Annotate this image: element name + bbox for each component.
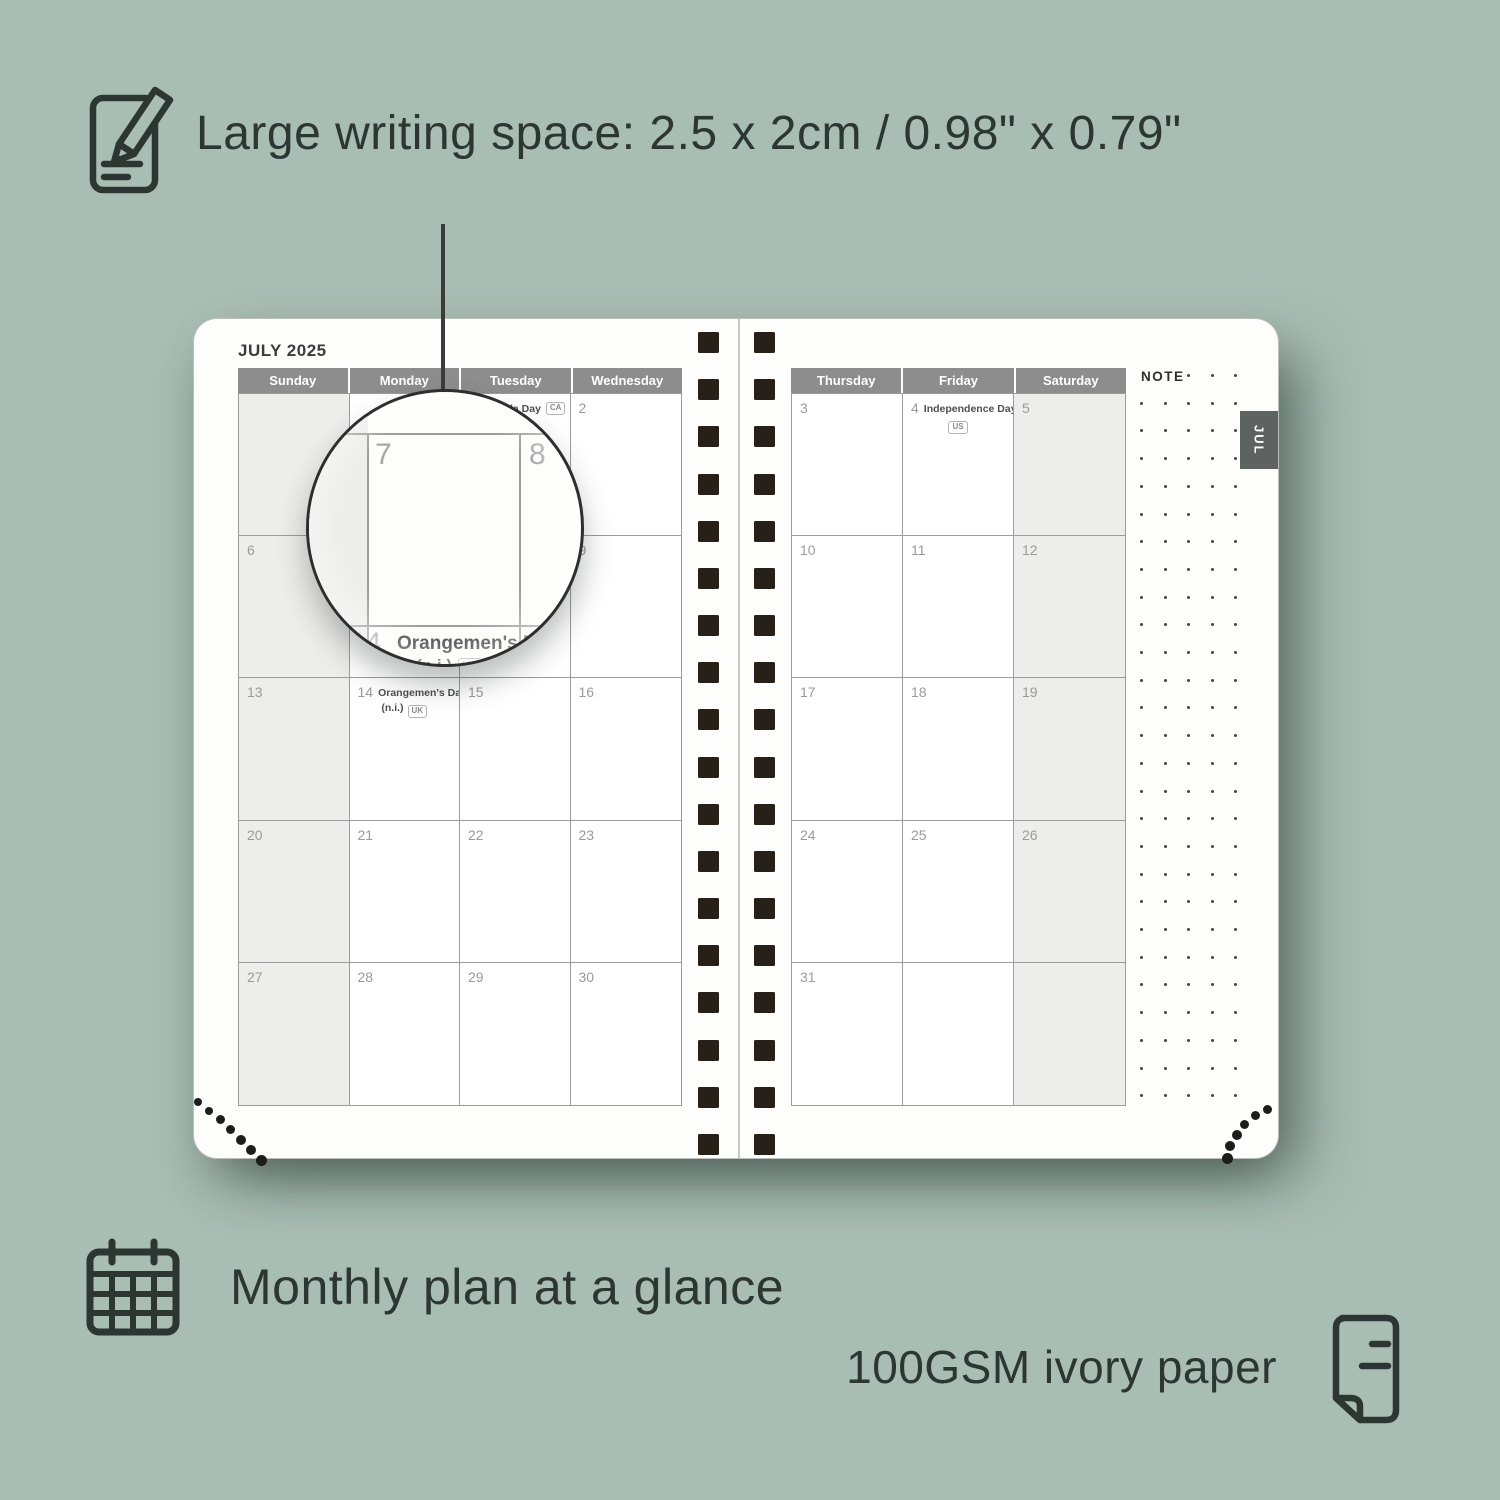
spiral-square bbox=[754, 662, 775, 683]
note-dot bbox=[1187, 457, 1190, 460]
spiral-square bbox=[698, 757, 719, 778]
calendar-cell: 12 bbox=[1014, 536, 1125, 678]
note-dot bbox=[1164, 402, 1167, 405]
note-dot bbox=[1140, 429, 1143, 432]
calendar-cell: 3 bbox=[792, 394, 903, 536]
date-number: 10 bbox=[800, 541, 816, 559]
note-dot bbox=[1164, 568, 1167, 571]
calendar-cell: 31 bbox=[792, 963, 903, 1105]
note-dot bbox=[1211, 1011, 1214, 1014]
note-dot bbox=[1187, 568, 1190, 571]
date-number: 6 bbox=[247, 541, 255, 559]
spiral-square bbox=[754, 568, 775, 589]
note-dot bbox=[1140, 596, 1143, 599]
note-dot bbox=[1211, 817, 1214, 820]
note-dot bbox=[1211, 568, 1214, 571]
spiral-square bbox=[754, 1134, 775, 1155]
note-dot bbox=[1164, 873, 1167, 876]
note-dot bbox=[1140, 513, 1143, 516]
note-dot bbox=[1187, 679, 1190, 682]
note-dot bbox=[1211, 485, 1214, 488]
note-dot bbox=[1187, 540, 1190, 543]
corner-dot bbox=[216, 1115, 225, 1124]
note-dot bbox=[1187, 900, 1190, 903]
day-header: Tuesday bbox=[459, 368, 571, 393]
day-header: Friday bbox=[901, 368, 1013, 393]
note-dot bbox=[1234, 1039, 1237, 1042]
date-number: 25 bbox=[911, 826, 927, 844]
right-page-calendar: ThursdayFridaySaturday 34Independence Da… bbox=[791, 368, 1126, 1106]
magnified-day-7: 7 bbox=[375, 438, 392, 472]
date-number: 22 bbox=[468, 826, 484, 844]
note-dot bbox=[1234, 762, 1237, 765]
note-dot bbox=[1140, 457, 1143, 460]
spiral-square bbox=[698, 1040, 719, 1061]
note-dot bbox=[1187, 1094, 1190, 1097]
spiral-binding-left bbox=[698, 332, 719, 1155]
note-dot bbox=[1164, 457, 1167, 460]
calendar-cell: 16 bbox=[571, 678, 682, 820]
calendar-cell: 14Orangemen's Day(n.i.)UK bbox=[350, 678, 461, 820]
country-badge: CA bbox=[546, 402, 566, 415]
product-image: { "colors":{ "background":"#a8bdb3", "te… bbox=[0, 0, 1500, 1500]
spiral-square bbox=[698, 662, 719, 683]
note-dot bbox=[1164, 790, 1167, 793]
note-dot bbox=[1234, 706, 1237, 709]
spiral-square bbox=[754, 426, 775, 447]
calendar-cell: 21 bbox=[350, 821, 461, 963]
note-dot bbox=[1211, 706, 1214, 709]
calendar-cell: 17 bbox=[792, 678, 903, 820]
calendar-cell: 11 bbox=[903, 536, 1014, 678]
date-number: 14 bbox=[358, 683, 374, 701]
note-dot bbox=[1211, 956, 1214, 959]
calendar-cell: 19 bbox=[1014, 678, 1125, 820]
corner-dot bbox=[256, 1155, 267, 1166]
note-dot bbox=[1187, 485, 1190, 488]
note-dot bbox=[1234, 485, 1237, 488]
note-dot bbox=[1187, 1039, 1190, 1042]
note-dot bbox=[1234, 623, 1237, 626]
date-number: 19 bbox=[1022, 683, 1038, 701]
date-number: 29 bbox=[468, 968, 484, 986]
note-dot bbox=[1211, 1067, 1214, 1070]
spiral-square bbox=[754, 804, 775, 825]
month-title: JULY 2025 bbox=[238, 341, 327, 361]
calendar-cell: 27 bbox=[239, 963, 350, 1105]
calendar-cell: 2 bbox=[571, 394, 682, 536]
writing-space-caption: Large writing space: 2.5 x 2cm / 0.98" x… bbox=[196, 106, 1182, 161]
note-dot bbox=[1234, 651, 1237, 654]
note-dot bbox=[1140, 1094, 1143, 1097]
pointer-line bbox=[441, 224, 445, 394]
corner-dot bbox=[1232, 1130, 1242, 1140]
date-number: 13 bbox=[247, 683, 263, 701]
note-dot bbox=[1234, 845, 1237, 848]
day-header: Sunday bbox=[238, 368, 348, 393]
spiral-square bbox=[698, 1134, 719, 1155]
date-number: 11 bbox=[911, 541, 926, 559]
calendar-cell: 4Independence DayUS bbox=[903, 394, 1014, 536]
note-dot bbox=[1140, 817, 1143, 820]
right-grid-body: 34Independence DayUS51011121718192425263… bbox=[791, 393, 1126, 1106]
note-dot bbox=[1234, 374, 1237, 377]
note-dot bbox=[1187, 706, 1190, 709]
spiral-square bbox=[698, 379, 719, 400]
note-dot bbox=[1187, 374, 1190, 377]
note-dot bbox=[1140, 623, 1143, 626]
spiral-square bbox=[698, 568, 719, 589]
date-number: 15 bbox=[468, 683, 484, 701]
note-dot bbox=[1234, 679, 1237, 682]
date-number: 30 bbox=[579, 968, 595, 986]
page-divider bbox=[738, 319, 740, 1158]
corner-dot bbox=[1222, 1153, 1233, 1164]
spiral-square bbox=[698, 898, 719, 919]
note-dot bbox=[1211, 651, 1214, 654]
right-day-headers: ThursdayFridaySaturday bbox=[791, 368, 1126, 393]
note-dot bbox=[1140, 706, 1143, 709]
calendar-cell bbox=[903, 963, 1014, 1105]
magnified-day-8: 8 bbox=[529, 438, 546, 472]
date-number: 4 bbox=[911, 399, 919, 417]
date-number: 16 bbox=[579, 683, 595, 701]
note-dot bbox=[1140, 762, 1143, 765]
calendar-cell: 15 bbox=[460, 678, 571, 820]
note-dot bbox=[1234, 873, 1237, 876]
day-header: Saturday bbox=[1014, 368, 1126, 393]
spiral-square bbox=[698, 945, 719, 966]
country-badge: UK bbox=[408, 705, 428, 718]
spiral-square bbox=[754, 474, 775, 495]
spiral-square bbox=[754, 521, 775, 542]
note-dot bbox=[1234, 790, 1237, 793]
note-dot bbox=[1187, 402, 1190, 405]
note-dot bbox=[1164, 1011, 1167, 1014]
note-dot bbox=[1211, 900, 1214, 903]
note-dot bbox=[1234, 1067, 1237, 1070]
note-dot bbox=[1187, 513, 1190, 516]
note-dot bbox=[1140, 845, 1143, 848]
corner-dot bbox=[194, 1098, 202, 1106]
note-dot bbox=[1140, 1011, 1143, 1014]
note-dot bbox=[1234, 928, 1237, 931]
note-dot bbox=[1187, 429, 1190, 432]
note-dot bbox=[1211, 762, 1214, 765]
note-dot bbox=[1164, 817, 1167, 820]
note-dot bbox=[1140, 956, 1143, 959]
holiday-name: Independence Day bbox=[924, 403, 1014, 415]
date-number: 18 bbox=[911, 683, 927, 701]
spiral-square bbox=[698, 615, 719, 636]
note-dot bbox=[1211, 928, 1214, 931]
calendar-cell bbox=[1014, 963, 1125, 1105]
note-dot bbox=[1187, 873, 1190, 876]
spiral-square bbox=[698, 804, 719, 825]
pencil-note-icon bbox=[86, 80, 186, 198]
note-dot bbox=[1234, 983, 1237, 986]
note-dot bbox=[1187, 928, 1190, 931]
calendar-cell: 28 bbox=[350, 963, 461, 1105]
note-dot bbox=[1211, 873, 1214, 876]
note-dot bbox=[1164, 845, 1167, 848]
corner-dot bbox=[226, 1125, 235, 1134]
note-dot bbox=[1164, 928, 1167, 931]
calendar-cell: 20 bbox=[239, 821, 350, 963]
note-dot bbox=[1140, 679, 1143, 682]
note-dot bbox=[1164, 485, 1167, 488]
calendar-cell: 29 bbox=[460, 963, 571, 1105]
calendar-cell: 24 bbox=[792, 821, 903, 963]
note-dot bbox=[1187, 790, 1190, 793]
note-dot bbox=[1140, 873, 1143, 876]
note-dot bbox=[1187, 1067, 1190, 1070]
note-dot bbox=[1211, 374, 1214, 377]
paper-caption: 100GSM ivory paper bbox=[846, 1340, 1277, 1394]
holiday-suffix: (n.i.) bbox=[381, 702, 403, 718]
note-dot bbox=[1164, 706, 1167, 709]
note-dot bbox=[1234, 900, 1237, 903]
date-number: 26 bbox=[1022, 826, 1038, 844]
note-dot bbox=[1211, 845, 1214, 848]
note-dot bbox=[1164, 596, 1167, 599]
spiral-square bbox=[698, 332, 719, 353]
note-dot bbox=[1187, 1011, 1190, 1014]
note-dot bbox=[1211, 734, 1214, 737]
note-dot bbox=[1211, 429, 1214, 432]
note-dot bbox=[1211, 1039, 1214, 1042]
calendar-grid-icon bbox=[84, 1238, 182, 1338]
calendar-cell: 9 bbox=[571, 536, 682, 678]
note-dot bbox=[1234, 429, 1237, 432]
calendar-cell: 23 bbox=[571, 821, 682, 963]
note-dot bbox=[1140, 402, 1143, 405]
note-dot bbox=[1187, 651, 1190, 654]
note-dot bbox=[1164, 1039, 1167, 1042]
note-dot bbox=[1164, 1094, 1167, 1097]
note-dot bbox=[1234, 402, 1237, 405]
note-dot bbox=[1140, 983, 1143, 986]
spiral-square bbox=[754, 1040, 775, 1061]
note-dot bbox=[1211, 402, 1214, 405]
note-dot bbox=[1164, 734, 1167, 737]
date-number: 23 bbox=[579, 826, 595, 844]
date-number: 31 bbox=[800, 968, 816, 986]
date-number: 27 bbox=[247, 968, 263, 986]
note-dot bbox=[1140, 928, 1143, 931]
note-dot bbox=[1187, 762, 1190, 765]
spiral-square bbox=[754, 945, 775, 966]
calendar-cell: 18 bbox=[903, 678, 1014, 820]
note-dot bbox=[1164, 679, 1167, 682]
note-dot bbox=[1140, 540, 1143, 543]
note-dot bbox=[1234, 1011, 1237, 1014]
spiral-square bbox=[754, 709, 775, 730]
note-dot bbox=[1140, 651, 1143, 654]
note-dot bbox=[1164, 956, 1167, 959]
date-number: 24 bbox=[800, 826, 816, 844]
spiral-square bbox=[754, 851, 775, 872]
spiral-square bbox=[698, 426, 719, 447]
corner-dot bbox=[236, 1135, 246, 1145]
spiral-square bbox=[754, 1087, 775, 1108]
calendar-cell: 10 bbox=[792, 536, 903, 678]
note-dot bbox=[1187, 845, 1190, 848]
note-dot bbox=[1187, 817, 1190, 820]
note-dot bbox=[1211, 790, 1214, 793]
note-dot bbox=[1164, 762, 1167, 765]
note-dot bbox=[1211, 679, 1214, 682]
date-number: 3 bbox=[800, 399, 808, 417]
monthly-plan-caption: Monthly plan at a glance bbox=[230, 1258, 784, 1316]
note-dot bbox=[1164, 429, 1167, 432]
note-dot bbox=[1187, 983, 1190, 986]
magnified-day-14: 14 bbox=[351, 627, 381, 658]
note-dot bbox=[1211, 983, 1214, 986]
note-dot bbox=[1187, 596, 1190, 599]
spiral-square bbox=[754, 615, 775, 636]
note-dot bbox=[1164, 651, 1167, 654]
note-dot bbox=[1234, 734, 1237, 737]
note-dot bbox=[1234, 568, 1237, 571]
paper-sheet-icon bbox=[1320, 1312, 1406, 1426]
magnified-holiday: Orangemen's Day bbox=[397, 633, 558, 655]
month-tab: JUL bbox=[1240, 411, 1278, 469]
note-dot bbox=[1140, 734, 1143, 737]
spiral-square bbox=[698, 992, 719, 1013]
note-dot bbox=[1140, 900, 1143, 903]
corner-dot bbox=[1240, 1120, 1249, 1129]
spiral-square bbox=[698, 851, 719, 872]
spiral-square bbox=[754, 379, 775, 400]
magnifier-lens: 7 8 14 Orangemen's Day (n.i.) UK bbox=[306, 389, 584, 667]
note-dot bbox=[1187, 956, 1190, 959]
spiral-square bbox=[698, 521, 719, 542]
note-dot bbox=[1234, 513, 1237, 516]
note-dot bbox=[1164, 900, 1167, 903]
note-dot bbox=[1140, 568, 1143, 571]
note-dot bbox=[1234, 1094, 1237, 1097]
holiday-name: Orangemen's Day bbox=[378, 687, 460, 699]
note-dot bbox=[1211, 513, 1214, 516]
date-number: 2 bbox=[579, 399, 587, 417]
date-number: 5 bbox=[1022, 399, 1030, 417]
note-dot bbox=[1164, 540, 1167, 543]
date-number: 12 bbox=[1022, 541, 1038, 559]
note-dot bbox=[1164, 623, 1167, 626]
corner-dot bbox=[205, 1107, 213, 1115]
note-dot bbox=[1234, 540, 1237, 543]
note-dot bbox=[1164, 983, 1167, 986]
note-label: NOTE bbox=[1141, 369, 1185, 384]
note-dot bbox=[1234, 457, 1237, 460]
note-dot bbox=[1211, 457, 1214, 460]
note-dot bbox=[1140, 1039, 1143, 1042]
corner-dot bbox=[1263, 1105, 1272, 1114]
note-dot bbox=[1211, 1094, 1214, 1097]
date-number: 20 bbox=[247, 826, 263, 844]
note-dot bbox=[1234, 956, 1237, 959]
calendar-cell: 26 bbox=[1014, 821, 1125, 963]
note-dot bbox=[1234, 596, 1237, 599]
note-dot bbox=[1211, 540, 1214, 543]
date-number: 28 bbox=[358, 968, 374, 986]
note-dot bbox=[1164, 1067, 1167, 1070]
calendar-cell: 5 bbox=[1014, 394, 1125, 536]
spiral-square bbox=[754, 992, 775, 1013]
note-dot bbox=[1164, 513, 1167, 516]
calendar-cell: 22 bbox=[460, 821, 571, 963]
spiral-square bbox=[754, 332, 775, 353]
note-dot bbox=[1140, 485, 1143, 488]
day-header: Thursday bbox=[791, 368, 901, 393]
note-dot bbox=[1187, 623, 1190, 626]
calendar-cell: 30 bbox=[571, 963, 682, 1105]
spiral-square bbox=[698, 1087, 719, 1108]
spiral-binding-right bbox=[754, 332, 775, 1155]
note-dot bbox=[1211, 596, 1214, 599]
note-dot bbox=[1187, 734, 1190, 737]
spiral-square bbox=[754, 898, 775, 919]
day-header: Wednesday bbox=[571, 368, 683, 393]
spiral-square bbox=[754, 757, 775, 778]
corner-dot bbox=[246, 1145, 256, 1155]
corner-dot bbox=[1225, 1141, 1235, 1151]
calendar-cell: 25 bbox=[903, 821, 1014, 963]
date-number: 17 bbox=[800, 683, 816, 701]
country-badge: US bbox=[948, 421, 967, 434]
note-dot bbox=[1234, 817, 1237, 820]
spiral-square bbox=[698, 474, 719, 495]
calendar-cell: 13 bbox=[239, 678, 350, 820]
note-dot bbox=[1140, 1067, 1143, 1070]
date-number: 21 bbox=[358, 826, 374, 844]
spiral-square bbox=[698, 709, 719, 730]
corner-dot bbox=[1251, 1111, 1260, 1120]
note-dot bbox=[1211, 623, 1214, 626]
note-dot bbox=[1140, 790, 1143, 793]
